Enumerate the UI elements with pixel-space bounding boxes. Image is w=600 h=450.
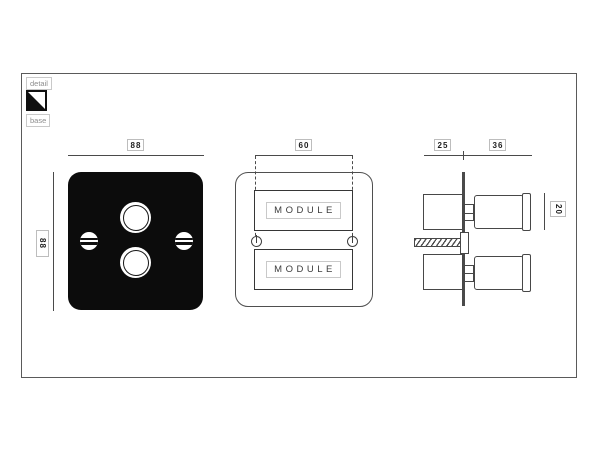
knob-ring [123, 250, 149, 276]
knob-height-dimension-label: 20 [550, 201, 566, 217]
dimmer-knob-bottom [120, 247, 151, 278]
diagonal-split-square-icon [26, 90, 47, 111]
technical-drawing-page: detail base 88 88 [0, 0, 600, 450]
screw-slot-line [80, 242, 98, 244]
front-width-dimension-label: 88 [127, 139, 144, 151]
shaft-divider-line [465, 273, 474, 274]
module-slot-top: MODULE [254, 190, 353, 231]
knob-body-side-top [474, 195, 525, 229]
screw-slot-line [175, 242, 193, 244]
knob-face-cap-bottom [522, 254, 531, 292]
legend-detail-label: detail [26, 77, 52, 90]
screw-slot-line [175, 238, 193, 240]
screw-bushing [460, 232, 469, 254]
fixing-screw-left [251, 236, 262, 247]
screw-right [175, 232, 193, 250]
knob-shaft-bottom [464, 265, 475, 282]
screw-left [80, 232, 98, 250]
back-depth-dimension-label: 25 [434, 139, 451, 151]
knob-body-side-bottom [474, 256, 525, 290]
threaded-screw-side [414, 238, 462, 248]
module-width-dimension-line [255, 155, 353, 156]
knob-ring [123, 205, 149, 231]
side-depth-dimension-line [424, 155, 532, 156]
shaft-divider-line [465, 213, 474, 214]
screw-slot-line [352, 235, 353, 243]
legend-base-label: base [26, 114, 50, 127]
front-width-dimension-line [68, 155, 204, 156]
module-body-back-top [423, 194, 463, 230]
screw-slot-line [256, 235, 257, 243]
front-depth-dimension-label: 36 [489, 139, 506, 151]
knob-face-cap-top [522, 193, 531, 231]
front-height-dimension-line [53, 172, 54, 311]
front-height-dimension-label: 88 [36, 230, 49, 257]
knob-shaft-top [464, 204, 475, 221]
front-plate [68, 172, 203, 310]
side-depth-dimension-tick [463, 151, 464, 160]
module-body-back-bottom [423, 254, 463, 290]
module-label-top: MODULE [266, 202, 341, 219]
fixing-screw-right [347, 236, 358, 247]
module-label-bottom: MODULE [266, 261, 341, 278]
screw-slot-line [80, 238, 98, 240]
knob-height-dimension-line [544, 193, 545, 230]
dimmer-knob-top [120, 202, 151, 233]
module-slot-bottom: MODULE [254, 249, 353, 290]
module-width-dimension-label: 60 [295, 139, 312, 151]
